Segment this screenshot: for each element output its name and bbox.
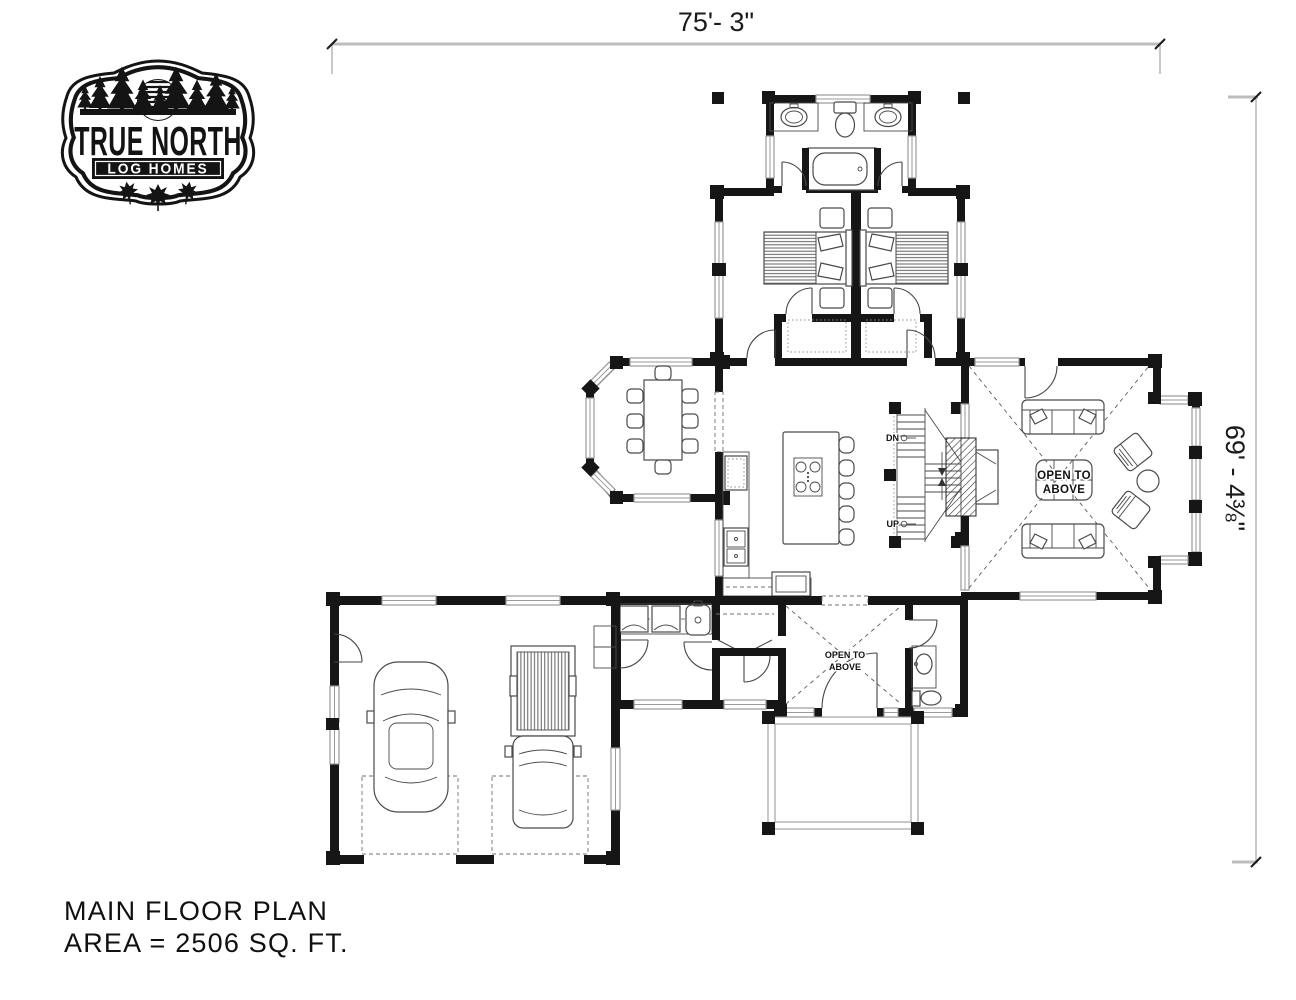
plan-title: MAIN FLOOR PLAN xyxy=(64,896,328,926)
side-table xyxy=(1137,470,1159,492)
closet-shelving xyxy=(866,320,916,352)
window xyxy=(957,222,965,266)
vanity-sink xyxy=(912,646,936,688)
floor-plan-sheet: TRUE NORTH LOG HOMES 75'- 3" 69' - 4⅜" xyxy=(0,0,1296,1000)
window xyxy=(382,596,436,605)
armchair xyxy=(1113,432,1154,473)
bed xyxy=(860,208,948,308)
window xyxy=(715,274,723,318)
cased-opening xyxy=(822,596,868,605)
stool xyxy=(839,529,854,545)
stair-direction-arrows xyxy=(938,452,946,500)
stairs-down-label: DN xyxy=(886,433,899,443)
company-logo: TRUE NORTH LOG HOMES xyxy=(62,61,253,211)
kitchen-sink xyxy=(724,528,748,566)
dimension-right-label: 69' - 4⅜" xyxy=(1220,425,1250,531)
window xyxy=(908,136,916,178)
door-arc xyxy=(620,640,648,668)
kitchen xyxy=(715,358,854,600)
window xyxy=(330,686,339,722)
window xyxy=(634,494,690,502)
stool xyxy=(839,483,854,499)
plan-area: AREA = 2506 SQ. FT. xyxy=(64,928,349,958)
armchair xyxy=(1111,490,1152,531)
refriger​ator xyxy=(725,456,747,490)
mirror xyxy=(367,711,374,723)
window xyxy=(1160,396,1188,404)
open-to-above-label: ABOVE xyxy=(829,662,861,672)
sofa xyxy=(1022,400,1104,434)
window xyxy=(506,596,560,605)
stool xyxy=(839,460,854,476)
door-arc xyxy=(878,162,902,186)
open-to-above-label: OPEN TO xyxy=(1037,470,1091,482)
great-room: OPEN TO ABOVE xyxy=(946,354,1202,604)
open-to-above-label: OPEN TO xyxy=(825,650,865,660)
window xyxy=(975,358,1019,366)
sofa xyxy=(1022,524,1104,558)
garage xyxy=(326,592,620,865)
window xyxy=(330,728,339,764)
dining-table xyxy=(644,380,682,460)
door-arc xyxy=(786,288,812,314)
window xyxy=(630,358,692,366)
car xyxy=(367,662,455,812)
dining-chair xyxy=(655,366,671,380)
laundry-sink xyxy=(686,601,710,635)
bedrooms xyxy=(710,185,970,366)
title-block: MAIN FLOOR PLAN AREA = 2506 SQ. FT. xyxy=(64,896,349,958)
window xyxy=(634,700,682,709)
fireplace xyxy=(946,438,998,516)
window xyxy=(715,520,723,576)
mirror xyxy=(505,746,512,757)
porch-post xyxy=(712,92,724,104)
door-arc xyxy=(747,330,775,358)
porch xyxy=(762,711,924,835)
window xyxy=(715,222,723,266)
mirror xyxy=(574,746,581,757)
vanity-sink xyxy=(864,103,912,131)
dining-chair xyxy=(682,439,698,453)
door-arc xyxy=(909,620,937,648)
window xyxy=(961,404,969,438)
porch-post xyxy=(958,92,970,104)
open-to-above-label: ABOVE xyxy=(1043,484,1085,496)
window xyxy=(1192,408,1200,446)
nightstand xyxy=(868,288,892,308)
bathroom xyxy=(712,91,970,193)
dimension-top-label: 75'- 3" xyxy=(678,7,754,37)
floor-plan-drawing: TRUE NORTH LOG HOMES 75'- 3" 69' - 4⅜" xyxy=(0,0,1296,1000)
dining-chair xyxy=(682,389,698,403)
dining-chair xyxy=(682,414,698,428)
logo-subtitle-text: LOG HOMES xyxy=(107,160,208,176)
window xyxy=(1192,458,1200,500)
dining-chair xyxy=(655,460,671,474)
window xyxy=(961,546,969,590)
nightstand xyxy=(820,208,844,228)
window xyxy=(957,274,965,318)
window xyxy=(1192,512,1200,552)
window xyxy=(724,700,766,709)
door-arc xyxy=(744,656,770,682)
closet-shelving xyxy=(788,320,846,352)
dining-room xyxy=(581,355,730,505)
dimension-right: 69' - 4⅜" xyxy=(1220,92,1261,867)
door-arc xyxy=(684,642,712,670)
stool xyxy=(839,437,854,453)
kitchen-island xyxy=(783,432,854,545)
nightstand xyxy=(820,288,844,308)
window xyxy=(1160,556,1188,564)
window xyxy=(1020,592,1096,600)
bathtub xyxy=(808,148,876,190)
window xyxy=(786,708,814,717)
window xyxy=(611,748,620,810)
window xyxy=(884,708,898,717)
toilet xyxy=(912,691,941,706)
door-arc xyxy=(1025,366,1057,398)
window xyxy=(766,136,774,178)
cased-opening xyxy=(715,392,723,452)
dining-chair xyxy=(627,389,643,403)
mudroom-laundry xyxy=(612,596,786,709)
pickup-truck xyxy=(505,646,581,828)
vanity-sink xyxy=(770,103,818,131)
stool xyxy=(839,506,854,522)
dimension-top: 75'- 3" xyxy=(327,7,1165,74)
laundry-counter xyxy=(616,601,712,635)
logo-title-text: TRUE NORTH xyxy=(74,119,241,165)
dining-chair xyxy=(627,439,643,453)
mirror xyxy=(448,711,455,723)
window xyxy=(586,398,594,458)
door-arc xyxy=(894,288,920,314)
dining-chair xyxy=(627,414,643,428)
toilet xyxy=(834,102,856,137)
tree-baseline xyxy=(80,109,236,115)
bed xyxy=(764,208,852,308)
powder-room xyxy=(909,620,941,706)
stairs-up-label: UP xyxy=(886,519,899,529)
nightstand xyxy=(868,208,892,228)
